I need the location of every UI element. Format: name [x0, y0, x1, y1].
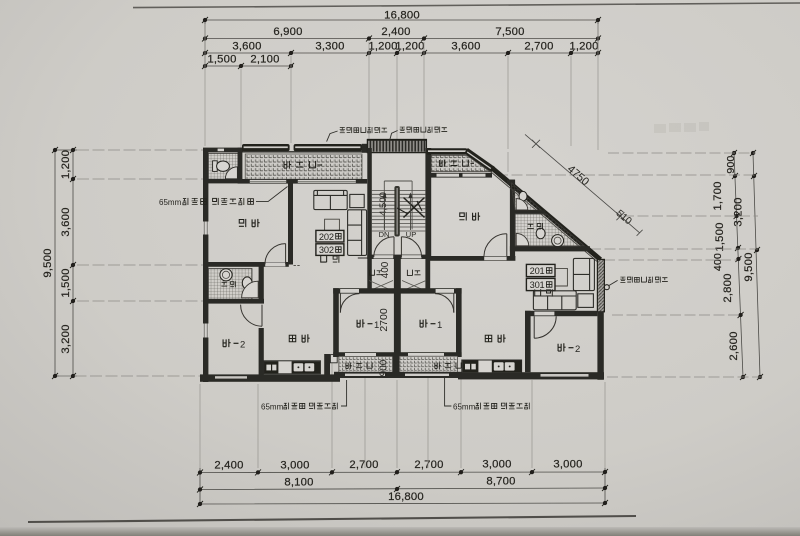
svg-text:9,500: 9,500 — [743, 252, 755, 281]
svg-text:2: 2 — [240, 340, 245, 351]
svg-text:400: 400 — [380, 261, 391, 278]
svg-text:3,000: 3,000 — [482, 459, 511, 471]
svg-text:1,200: 1,200 — [368, 41, 397, 53]
svg-text:1,200: 1,200 — [395, 41, 424, 53]
svg-text:2,600: 2,600 — [728, 331, 740, 360]
svg-text:16,800: 16,800 — [384, 10, 420, 22]
svg-text:1,700: 1,700 — [712, 181, 724, 210]
svg-text:65mm: 65mm — [453, 403, 476, 412]
svg-text:3,300: 3,300 — [315, 41, 344, 53]
svg-text:2,800: 2,800 — [722, 273, 734, 302]
svg-text:9,500: 9,500 — [42, 248, 54, 277]
svg-text:3,000: 3,000 — [280, 460, 309, 472]
svg-text:8,100: 8,100 — [284, 477, 313, 489]
svg-text:8,700: 8,700 — [486, 476, 515, 488]
svg-text:1: 1 — [437, 320, 442, 331]
svg-text:202: 202 — [319, 232, 334, 242]
svg-text:3,600: 3,600 — [60, 207, 72, 236]
svg-text:2,700: 2,700 — [524, 41, 553, 53]
svg-text:1,200: 1,200 — [60, 150, 72, 179]
svg-text:16,800: 16,800 — [388, 491, 424, 503]
svg-text:900: 900 — [725, 155, 737, 173]
svg-text:2,400: 2,400 — [214, 460, 243, 472]
svg-text:3,600: 3,600 — [232, 41, 261, 53]
svg-text:1,500: 1,500 — [714, 222, 726, 251]
svg-text:2: 2 — [575, 344, 580, 355]
svg-text:1,500: 1,500 — [60, 268, 72, 297]
svg-text:2,400: 2,400 — [381, 26, 410, 38]
svg-text:6,900: 6,900 — [273, 26, 302, 38]
svg-text:3,200: 3,200 — [60, 324, 72, 353]
svg-text:3,000: 3,000 — [553, 459, 582, 471]
svg-text:1,200: 1,200 — [569, 41, 598, 53]
svg-text:3,600: 3,600 — [451, 41, 480, 53]
svg-text:302: 302 — [319, 245, 334, 255]
svg-text:65mm: 65mm — [159, 198, 182, 207]
svg-text:2700: 2700 — [378, 308, 390, 332]
svg-text:2,700: 2,700 — [349, 459, 378, 471]
svg-text:65mm: 65mm — [261, 403, 284, 412]
svg-text:2,100: 2,100 — [250, 54, 279, 66]
svg-text:301: 301 — [530, 280, 545, 290]
svg-text:3,200: 3,200 — [733, 197, 745, 226]
svg-text:201: 201 — [530, 266, 545, 276]
svg-text:400: 400 — [712, 253, 724, 271]
svg-text:1,500: 1,500 — [207, 54, 236, 66]
svg-text:2,700: 2,700 — [414, 459, 443, 471]
svg-text:900: 900 — [379, 359, 390, 376]
svg-text:7,500: 7,500 — [495, 26, 524, 38]
